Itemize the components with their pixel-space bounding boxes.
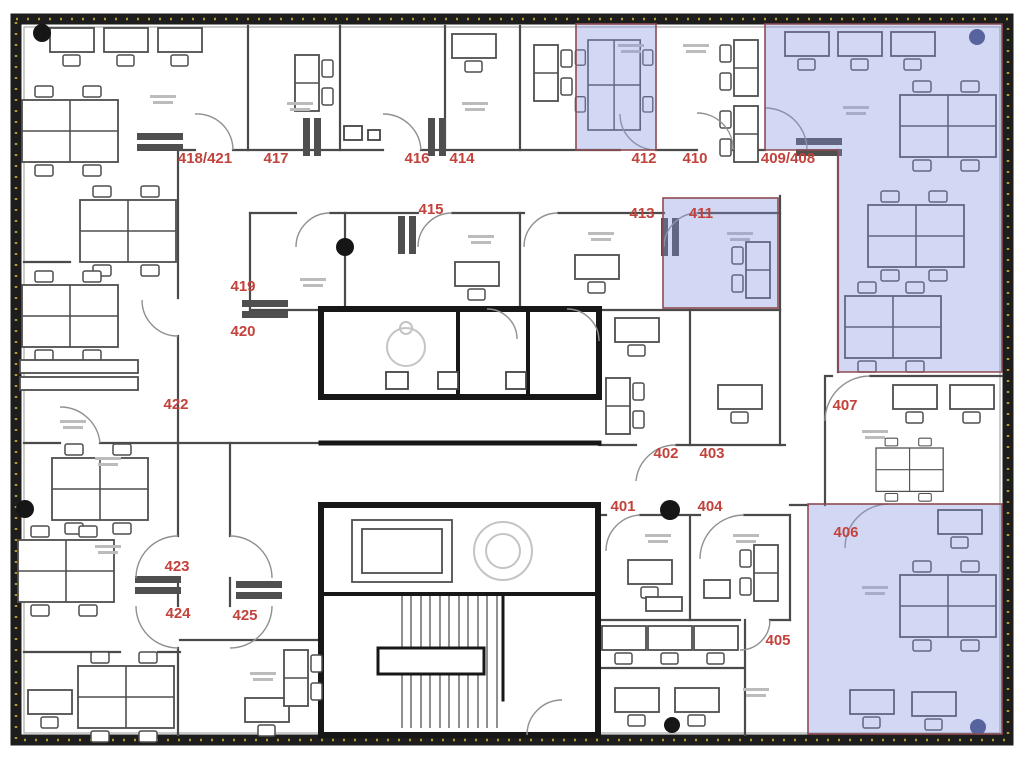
room-label-410: 410 xyxy=(682,150,707,167)
room-label-422: 422 xyxy=(163,396,188,413)
room-label-411: 411 xyxy=(689,205,713,222)
room-label-415: 415 xyxy=(418,201,443,218)
room-label-407: 407 xyxy=(832,397,857,414)
highlight-room-411[interactable] xyxy=(663,198,778,308)
room-label-418-421: 418/421 xyxy=(178,150,232,167)
room-label-406: 406 xyxy=(833,524,858,541)
highlight-room-412[interactable] xyxy=(576,24,656,150)
room-label-403: 403 xyxy=(699,445,724,462)
floor-plan: 418/421 417 416 414 412 410 409/408 415 … xyxy=(0,0,1024,768)
room-label-401: 401 xyxy=(610,498,635,515)
room-label-409-408: 409/408 xyxy=(761,150,815,167)
room-label-414: 414 xyxy=(449,150,475,167)
room-label-404: 404 xyxy=(697,498,723,515)
room-label-425: 425 xyxy=(232,607,257,624)
room-label-423: 423 xyxy=(164,558,189,575)
room-label-405: 405 xyxy=(765,632,790,649)
room-label-412: 412 xyxy=(631,150,656,167)
room-label-424: 424 xyxy=(165,605,191,622)
room-label-416: 416 xyxy=(404,150,429,167)
room-label-413: 413 xyxy=(629,205,654,222)
room-label-417: 417 xyxy=(263,150,288,167)
room-label-402: 402 xyxy=(653,445,678,462)
room-label-419: 419 xyxy=(230,278,255,295)
room-label-420: 420 xyxy=(230,323,255,340)
